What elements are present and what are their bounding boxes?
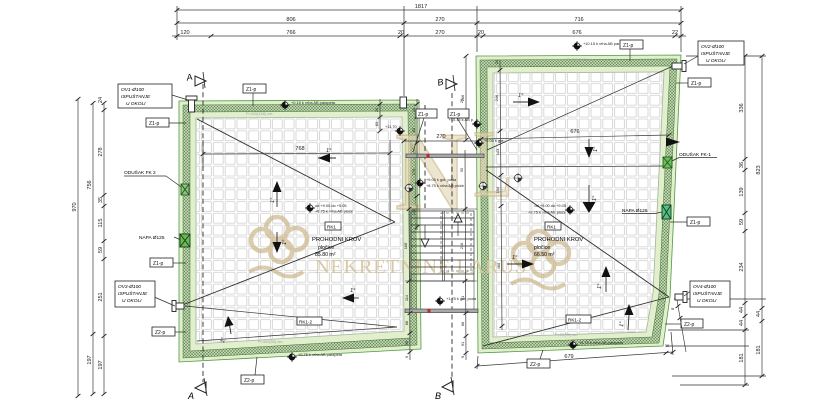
svg-text:ODUŠAK FK 2: ODUŠAK FK 2 (124, 169, 156, 176)
svg-text:ISPUŠTANJE: ISPUŠTANJE (701, 50, 731, 57)
svg-text:+1.75 k got. poda: +1.75 k got. poda (446, 296, 477, 301)
svg-text:ISPUŠTANJE: ISPUŠTANJE (693, 290, 723, 297)
svg-text:251: 251 (98, 292, 104, 301)
svg-text:1°: 1° (282, 239, 288, 245)
svg-text:44: 44 (756, 311, 762, 317)
svg-text:Z2-p: Z2-p (244, 378, 255, 384)
svg-text:35: 35 (98, 197, 104, 203)
svg-text:Z1-p: Z1-p (149, 121, 160, 127)
svg-text:115: 115 (98, 219, 104, 228)
svg-text:P=20(50) cm: P=20(50) cm (555, 332, 577, 337)
svg-text:Z1-p: Z1-p (450, 112, 461, 118)
svg-text:756: 756 (87, 180, 93, 189)
svg-text:Z1-p: Z1-p (246, 87, 257, 93)
svg-text:1°: 1° (326, 148, 332, 154)
svg-text:100: 100 (411, 208, 416, 215)
svg-text:U OKOLI: U OKOLI (122, 298, 142, 304)
svg-text:RK1: RK1 (547, 225, 556, 230)
svg-text:U OKOLI: U OKOLI (697, 298, 717, 304)
svg-text:197: 197 (98, 360, 104, 369)
svg-text:24: 24 (98, 97, 104, 103)
svg-text:+9.05 k got. poda: +9.05 k got. poda (426, 177, 457, 182)
svg-text:B: B (435, 391, 441, 400)
svg-text:100: 100 (495, 186, 500, 193)
svg-text:Z1-p: Z1-p (690, 220, 701, 226)
svg-text:716: 716 (574, 17, 583, 23)
svg-text:91: 91 (460, 342, 465, 346)
svg-text:1°: 1° (270, 197, 276, 203)
svg-text:139: 139 (739, 187, 745, 196)
svg-text:ISPUŠTANJE: ISPUŠTANJE (118, 290, 148, 297)
svg-text:83: 83 (411, 128, 416, 132)
svg-text:22: 22 (672, 30, 678, 36)
svg-text:ISPUŠTANJE: ISPUŠTANJE (121, 93, 151, 100)
svg-text:PROHODNI KROV: PROHODNI KROV (534, 237, 583, 243)
svg-text:270: 270 (435, 30, 444, 36)
svg-text:1°: 1° (518, 93, 524, 99)
svg-text:823: 823 (756, 165, 762, 174)
svg-text:1817: 1817 (415, 4, 427, 10)
svg-text:od +9.00 do +9.05: od +9.00 do +9.05 (534, 203, 566, 208)
svg-text:Z1-p: Z1-p (418, 112, 429, 118)
svg-text:114: 114 (404, 294, 409, 301)
svg-text:+0.75 k vrha AB parapeta: +0.75 k vrha AB parapeta (298, 352, 343, 357)
svg-text:9: 9 (460, 356, 465, 358)
svg-text:+11.70: +11.70 (385, 124, 398, 129)
svg-text:270: 270 (435, 17, 444, 23)
svg-text:1°: 1° (512, 255, 518, 261)
svg-text:234: 234 (739, 262, 745, 271)
svg-text:20: 20 (478, 30, 484, 36)
svg-text:OV2-Ø100: OV2-Ø100 (701, 44, 724, 50)
svg-text:NAPA Ø125: NAPA Ø125 (622, 208, 648, 214)
svg-text:66.50 m²: 66.50 m² (534, 252, 555, 258)
svg-text:59: 59 (98, 247, 104, 253)
svg-text:246: 246 (494, 95, 499, 102)
svg-text:143: 143 (495, 149, 500, 156)
svg-text:766: 766 (286, 30, 295, 36)
svg-text:176: 176 (411, 169, 416, 176)
svg-text:P=110(140) cm: P=110(140) cm (246, 111, 272, 116)
svg-text:9: 9 (404, 356, 409, 358)
svg-text:Z2-p: Z2-p (530, 362, 541, 368)
svg-text:676: 676 (570, 129, 579, 135)
svg-text:768: 768 (295, 146, 304, 152)
svg-text:1°: 1° (350, 288, 356, 294)
svg-text:278: 278 (98, 147, 104, 156)
svg-text:pločice: pločice (534, 245, 550, 251)
svg-text:Z1-p: Z1-p (153, 261, 164, 267)
svg-text:Z2-p: Z2-p (684, 322, 695, 328)
svg-text:+8.75 k vrha AB ploče: +8.75 k vrha AB ploče (426, 183, 464, 188)
svg-text:U OKOLI: U OKOLI (126, 101, 146, 107)
svg-text:OV3-Ø100: OV3-Ø100 (118, 284, 141, 290)
svg-text:44: 44 (739, 307, 745, 313)
svg-text:1°: 1° (597, 283, 603, 289)
svg-text:Z1-p: Z1-p (691, 81, 702, 87)
svg-text:OV1-Ø100: OV1-Ø100 (121, 87, 144, 93)
svg-text:181: 181 (739, 353, 745, 362)
svg-text:197: 197 (87, 355, 93, 364)
svg-text:83: 83 (374, 122, 379, 126)
svg-text:44: 44 (739, 320, 745, 326)
svg-text:+4.75 k vrha AB parapeta: +4.75 k vrha AB parapeta (579, 340, 624, 345)
svg-text:85.80 m²: 85.80 m² (315, 252, 336, 258)
svg-text:36: 36 (739, 162, 745, 168)
svg-text:66: 66 (460, 322, 465, 326)
svg-text:120: 120 (180, 30, 189, 36)
svg-text:Z1-p: Z1-p (623, 43, 634, 49)
svg-text:RK1-2: RK1-2 (299, 320, 312, 325)
svg-text:66: 66 (404, 321, 409, 325)
svg-text:+9.05 k got.: +9.05 k got. (484, 138, 504, 143)
svg-text:+8.75 k vrha AB ploče: +8.75 k vrha AB ploče (315, 209, 353, 214)
svg-text:pločice: pločice (318, 245, 334, 251)
svg-text:PROHODNI KROV: PROHODNI KROV (312, 237, 361, 243)
svg-text:1°: 1° (592, 195, 598, 201)
svg-text:P=110(140) cm: P=110(140) cm (567, 57, 593, 62)
svg-text:59: 59 (739, 219, 745, 225)
svg-text:A: A (187, 391, 194, 400)
svg-text:RK1-2: RK1-2 (568, 318, 581, 323)
svg-text:270: 270 (436, 134, 445, 140)
svg-text:970: 970 (72, 202, 78, 211)
svg-text:od +9.00 do +9.05: od +9.00 do +9.05 (315, 203, 347, 208)
svg-text:P=300(50) cm: P=300(50) cm (258, 339, 283, 344)
svg-text:NAPA Ø125: NAPA Ø125 (139, 235, 165, 241)
svg-text:181: 181 (756, 345, 762, 354)
svg-text:ODUŠAK FK-1: ODUŠAK FK-1 (679, 151, 711, 158)
svg-text:+8.75 k vrha AB ploče: +8.75 k vrha AB ploče (528, 210, 566, 215)
svg-text:58: 58 (404, 341, 409, 345)
svg-text:U OKOLI: U OKOLI (706, 58, 726, 64)
svg-text:OV4-Ø100: OV4-Ø100 (693, 284, 716, 290)
svg-text:679: 679 (564, 354, 573, 360)
svg-text:+0.15 k vrha AB parapeta: +0.15 k vrha AB parapeta (291, 100, 336, 105)
svg-text:168: 168 (403, 243, 408, 250)
svg-text:468: 468 (496, 263, 501, 270)
svg-text:1°: 1° (593, 146, 599, 152)
svg-text:RK1: RK1 (327, 225, 336, 230)
svg-text:806: 806 (286, 17, 295, 23)
svg-text:20: 20 (398, 30, 404, 36)
svg-text:676: 676 (572, 30, 581, 36)
svg-text:Z2-p: Z2-p (155, 330, 166, 336)
svg-text:336: 336 (739, 103, 745, 112)
svg-text:248: 248 (459, 243, 464, 250)
